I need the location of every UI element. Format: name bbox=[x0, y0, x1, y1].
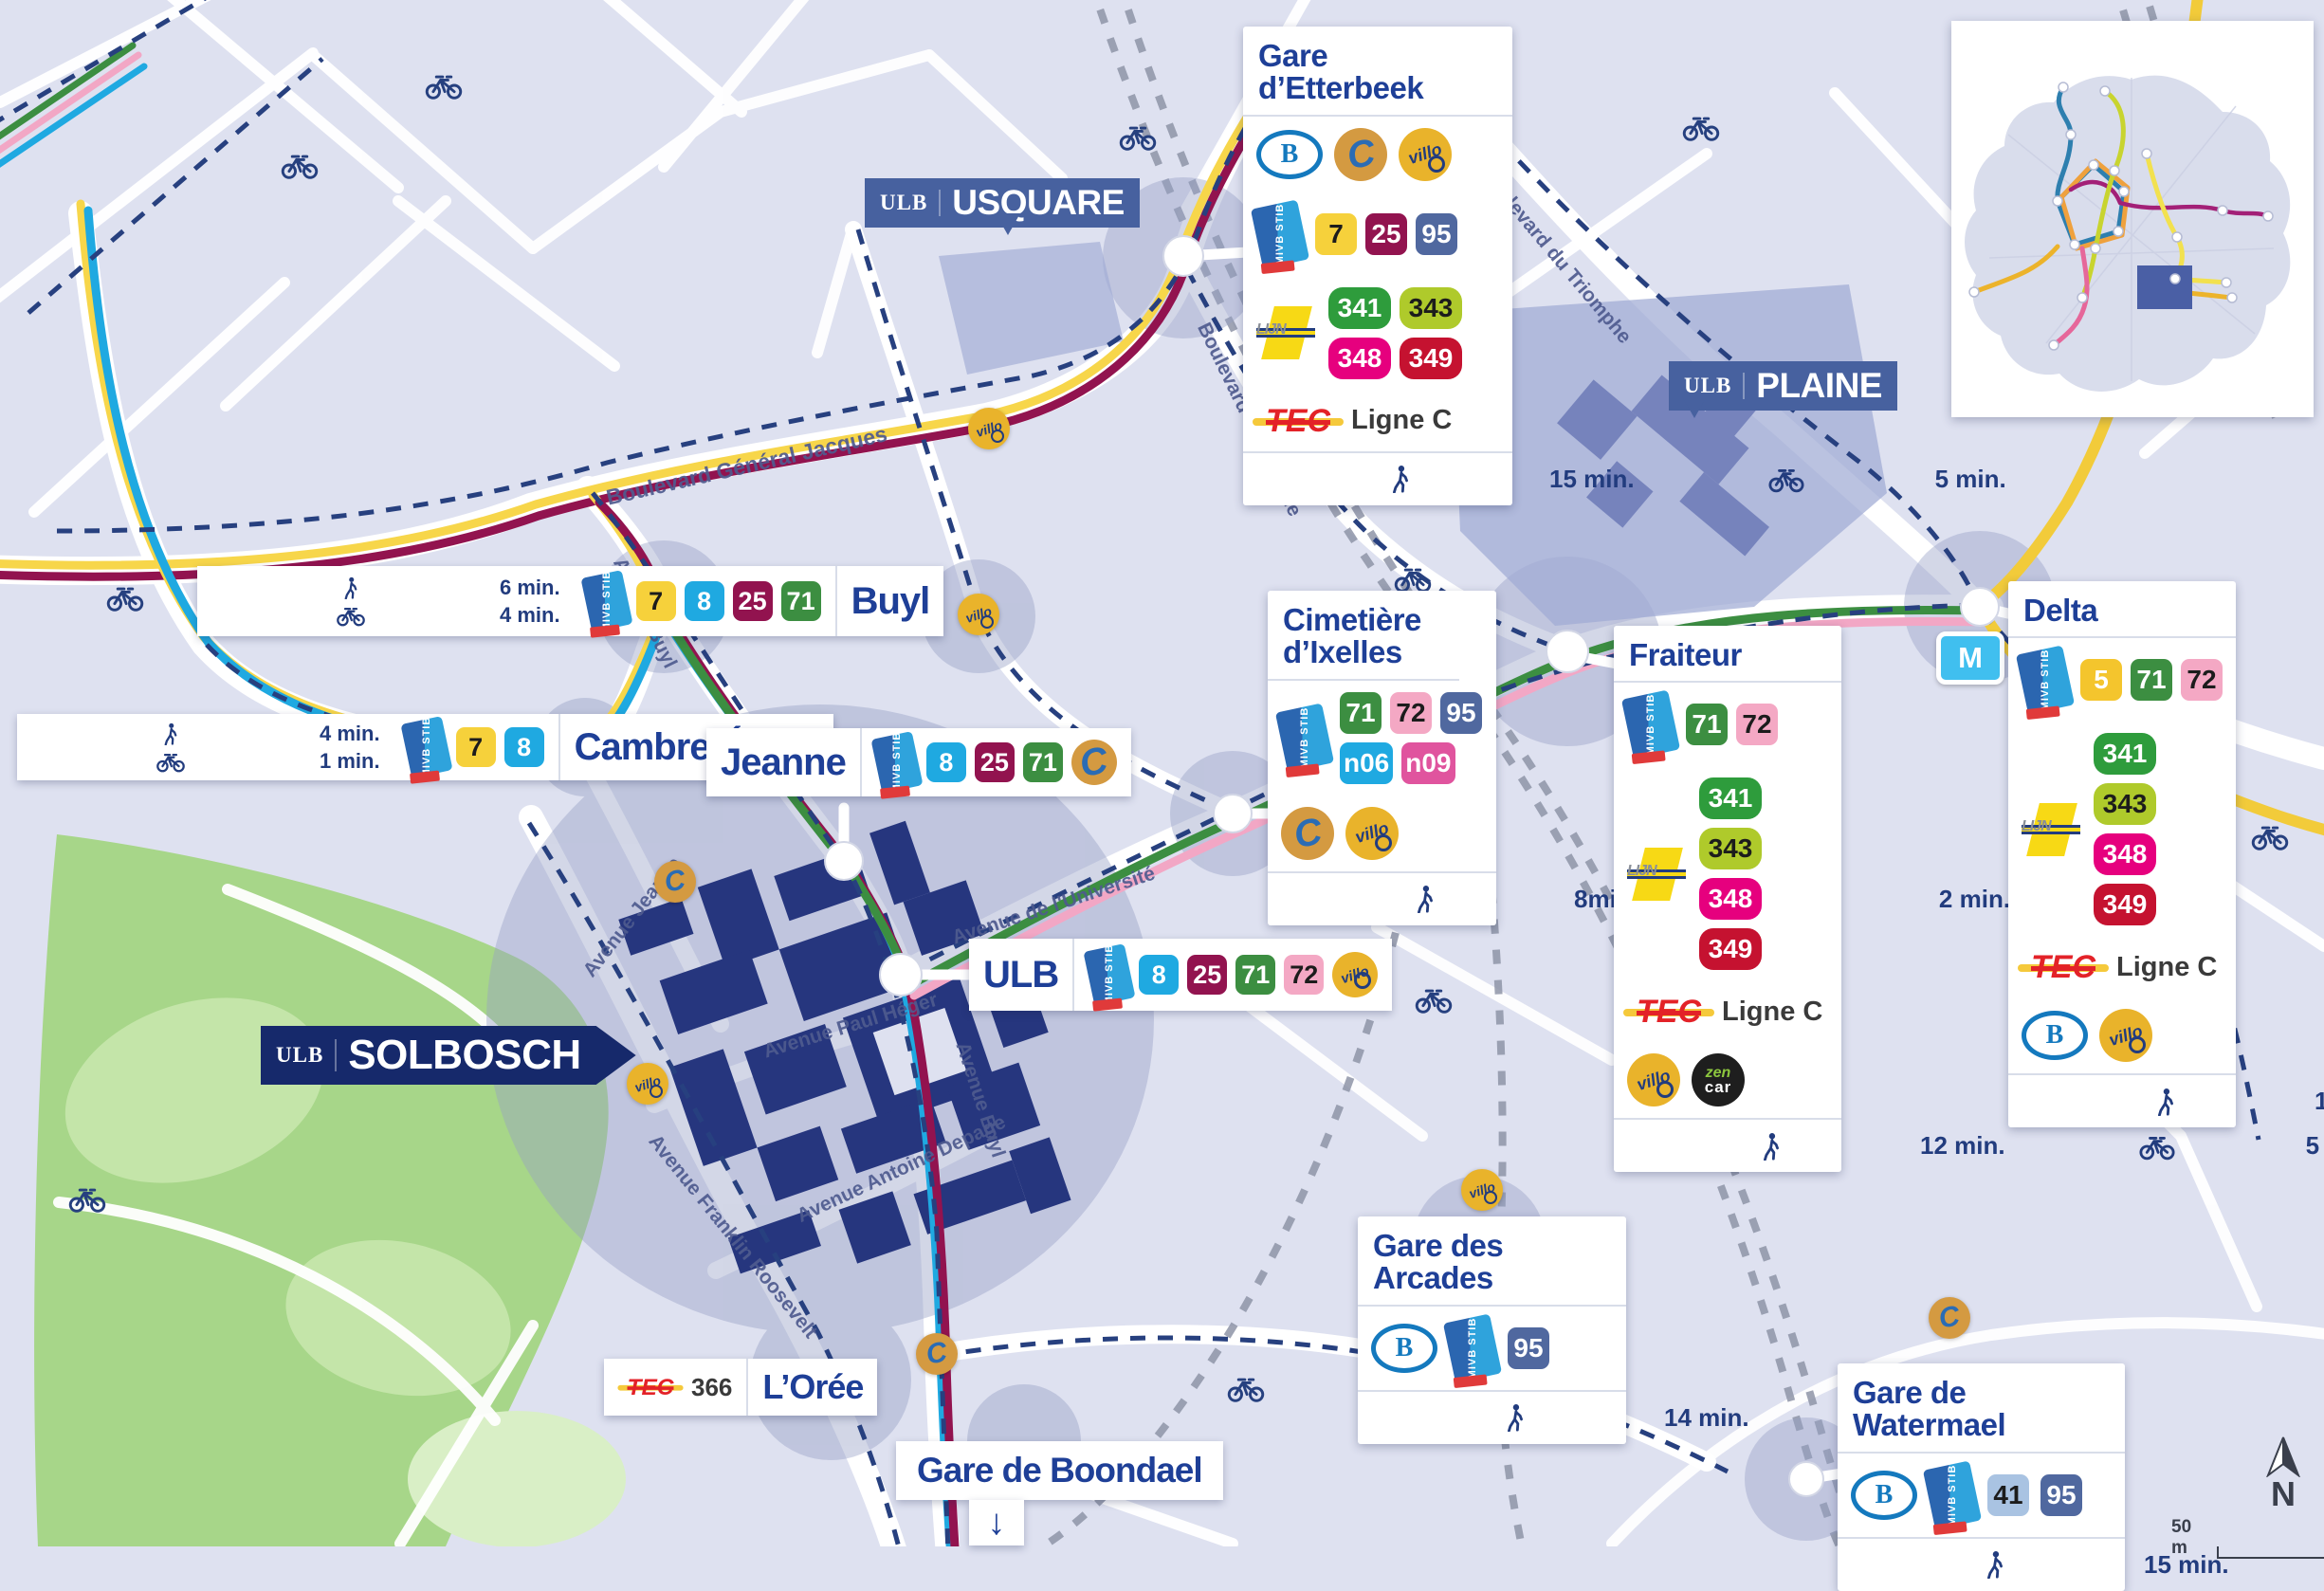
access-times: 6 min. 4 min. bbox=[197, 566, 572, 636]
panel-title: Gare d’Etterbeek bbox=[1243, 27, 1512, 117]
line-badge-95: 95 bbox=[1508, 1327, 1549, 1369]
villo-station-icon: villo bbox=[1461, 1169, 1503, 1211]
delijn-row: LIJN 341 343 348 349 bbox=[1614, 766, 1841, 981]
line-badge-8: 8 bbox=[1139, 955, 1179, 995]
tec-logo: TEC bbox=[2022, 948, 2105, 986]
access-times: 4 min. 1 min. bbox=[17, 714, 392, 780]
line-badge-95: 95 bbox=[1440, 692, 1482, 734]
stib-logo-text: MIVB STIB bbox=[1922, 1472, 1983, 1519]
delijn-row: LIJN 341 343 348 349 bbox=[1243, 276, 1512, 391]
line-badge-343: 343 bbox=[2094, 783, 2156, 825]
stib-logo-text: MIVB STIB bbox=[2015, 656, 2076, 704]
access-times: 14 min. 4 min. bbox=[1358, 1390, 1626, 1444]
line-badge-41: 41 bbox=[1987, 1474, 2029, 1516]
line-badge-72: 72 bbox=[1736, 704, 1778, 745]
line-badge-25: 25 bbox=[975, 742, 1015, 782]
access-times: 15 min. 5 min. bbox=[1243, 451, 1512, 505]
stop-label-boondael: Gare de Boondael bbox=[896, 1441, 1223, 1500]
cambio-logo-text: C bbox=[1344, 133, 1377, 174]
line-badge-349: 349 bbox=[1699, 928, 1762, 970]
transit-map-page: { "icons": { "stib": {"label": "MIVB STI… bbox=[0, 0, 2324, 1546]
operators-row: C villo bbox=[1268, 795, 1496, 871]
villo-icon: villo bbox=[2099, 1009, 2152, 1062]
metro-icon: M bbox=[1936, 631, 2004, 685]
stib-logo-text: MIVB STIB bbox=[579, 580, 634, 622]
stop-name: Buyl bbox=[851, 580, 930, 623]
stib-logo: MIVB STIB bbox=[870, 731, 923, 794]
line-badge-71: 71 bbox=[1235, 955, 1275, 995]
villo-logo-text: villo bbox=[2107, 1021, 2146, 1051]
stib-logo-text: MIVB STIB bbox=[1274, 714, 1335, 761]
stop-name: ULB bbox=[983, 954, 1058, 997]
walk-icon bbox=[1258, 465, 1543, 493]
panel-gare-etterbeek: Gare d’Etterbeek B C villo MIVB STIB 7 2… bbox=[1243, 27, 1512, 505]
line-badge-25: 25 bbox=[1187, 955, 1227, 995]
panel-title: Fraiteur bbox=[1614, 626, 1841, 683]
stib-logo: MIVB STIB bbox=[1923, 1460, 1982, 1529]
city-overview-inset bbox=[1951, 21, 2314, 417]
cambio-logo-text: C bbox=[924, 1338, 950, 1369]
walk-icon bbox=[1629, 1132, 1913, 1161]
sncb-icon: B bbox=[2022, 1011, 2088, 1060]
villo-logo-text: villo bbox=[1353, 818, 1392, 848]
delijn-logo: LIJN bbox=[1627, 848, 1688, 901]
panel-delta: Delta MIVB STIB 5 71 72 LIJN 341 343 348… bbox=[2008, 581, 2236, 1127]
bike-icon bbox=[1644, 465, 1929, 493]
villo-icon: villo bbox=[1399, 128, 1452, 181]
bike-time: 5 min. bbox=[2306, 1131, 2324, 1161]
stib-row: MIVB STIB 5 71 72 bbox=[2008, 638, 2236, 722]
tec-line: Ligne C bbox=[1722, 997, 1822, 1028]
walk-icon bbox=[209, 576, 493, 599]
sncb-icon: B bbox=[1851, 1471, 1917, 1520]
stop-name: L’Orée bbox=[762, 1367, 863, 1407]
walk-icon bbox=[1853, 1550, 2137, 1579]
villo-logo-text: villo bbox=[1406, 139, 1445, 169]
line-badge-n06: n06 bbox=[1340, 742, 1393, 784]
tec-line: Ligne C bbox=[1351, 405, 1452, 436]
access-times: 8min. 2 min. bbox=[1268, 871, 1496, 925]
panel-title: Gare de Watermael bbox=[1838, 1363, 2125, 1454]
walk-time: 14 min. bbox=[1664, 1403, 1749, 1433]
line-badge-71: 71 bbox=[1023, 742, 1063, 782]
bike-time: 5 min. bbox=[1935, 465, 2006, 494]
stop-lines: MIVB STIB 7 8 bbox=[392, 714, 558, 780]
stib-logo: MIVB STIB bbox=[1275, 704, 1334, 773]
tec-row: TEC Ligne C bbox=[1243, 391, 1512, 451]
cambio-station-icon: C bbox=[654, 861, 696, 903]
delijn-logo-text: LIJN bbox=[1627, 863, 1656, 880]
stop-strip-buyl: 6 min. 4 min. MIVB STIB 7 8 25 71 Buyl bbox=[197, 566, 943, 636]
line-badge-341: 341 bbox=[2094, 733, 2156, 775]
operators-row: B MIVB STIB 95 bbox=[1358, 1307, 1626, 1390]
flag-name: PLAINE bbox=[1756, 366, 1882, 406]
scale-bracket bbox=[2217, 1546, 2324, 1559]
operators-row: B villo bbox=[2008, 997, 2236, 1073]
stop-strip-oree: TEC 366 L’Orée bbox=[604, 1359, 877, 1416]
sncb-letter: B bbox=[1281, 139, 1299, 170]
flag-org: ULB bbox=[1684, 374, 1731, 398]
villo-logo-text: villo bbox=[1635, 1066, 1674, 1095]
sncb-letter: B bbox=[1876, 1480, 1894, 1510]
line-badge-5: 5 bbox=[2080, 659, 2122, 701]
delijn-row: LIJN 341 343 348 349 bbox=[2008, 722, 2236, 937]
stop-strip-ulb: ULB MIVB STIB 8 25 71 72 villo bbox=[969, 939, 1392, 1011]
stib-logo-text: MIVB STIB bbox=[1250, 210, 1310, 258]
sncb-letter: B bbox=[1396, 1333, 1414, 1363]
operators-row: villo zencar bbox=[1614, 1042, 1841, 1118]
cambio-logo-text: C bbox=[1937, 1302, 1963, 1333]
stop-name: Gare de Boondael bbox=[917, 1451, 1202, 1490]
line-badge-343: 343 bbox=[1699, 828, 1762, 869]
flag-org: ULB bbox=[880, 191, 927, 215]
stop-name: Jeanne bbox=[721, 741, 846, 784]
line-badge-72: 72 bbox=[1390, 692, 1432, 734]
campus-flag-usquare: ULB USQUARE bbox=[865, 178, 1140, 228]
cambio-station-icon: C bbox=[1929, 1297, 1970, 1339]
north-label: N bbox=[2255, 1477, 2312, 1511]
panel-cimetiere-ixelles: Cimetière d’Ixelles MIVB STIB 71 72 95 n… bbox=[1268, 591, 1496, 925]
walk-time: 19 min. bbox=[2315, 1087, 2324, 1116]
tec-logo-text: TEC bbox=[1637, 996, 1701, 1028]
walk-time: 12 min. bbox=[1920, 1131, 2005, 1161]
walk-time: 4 min. bbox=[320, 722, 380, 746]
line-badge-72: 72 bbox=[2181, 659, 2223, 701]
down-arrow-icon: ↓ bbox=[988, 1503, 1006, 1544]
sncb-icon: B bbox=[1256, 130, 1323, 179]
campus-flag-solbosch: ULB SOLBOSCH bbox=[261, 1026, 636, 1085]
sncb-icon: B bbox=[1371, 1324, 1437, 1373]
stib-logo: MIVB STIB bbox=[1621, 690, 1680, 759]
line-badge-7: 7 bbox=[1315, 213, 1357, 255]
walk-icon bbox=[1373, 1403, 1657, 1432]
stib-logo-text: MIVB STIB bbox=[399, 726, 454, 768]
flag-name: USQUARE bbox=[952, 183, 1125, 223]
tec-logo-text: TEC bbox=[628, 1376, 674, 1399]
panel-gare-de-watermael: Gare de Watermael B MIVB STIB 41 95 15 m… bbox=[1838, 1363, 2125, 1591]
villo-logo-text: villo bbox=[1339, 962, 1371, 986]
panel-title: Cimetière d’Ixelles bbox=[1268, 591, 1459, 681]
bike-time: 1 min. bbox=[320, 749, 380, 774]
line-badge-8: 8 bbox=[685, 581, 724, 621]
tec-logo-text: TEC bbox=[1266, 405, 1330, 437]
stop-lines: MIVB STIB 8 25 71 C bbox=[860, 728, 1131, 796]
villo-logo-text: villo bbox=[632, 1072, 663, 1095]
flag-name: SOLBOSCH bbox=[348, 1032, 580, 1079]
bike-icon bbox=[28, 750, 313, 773]
line-badge-349: 349 bbox=[2094, 884, 2156, 925]
stib-row: MIVB STIB 7 25 95 bbox=[1243, 192, 1512, 276]
line-badge-348: 348 bbox=[1699, 878, 1762, 920]
sncb-letter: B bbox=[2046, 1020, 2064, 1051]
tec-row: TEC Ligne C bbox=[2008, 937, 2236, 997]
stib-logo: MIVB STIB bbox=[1251, 199, 1309, 268]
cambio-logo-text: C bbox=[1290, 812, 1324, 853]
line-badge-71: 71 bbox=[2131, 659, 2172, 701]
tec-logo: TEC bbox=[620, 1374, 680, 1401]
stib-row: MIVB STIB 71 72 bbox=[1614, 683, 1841, 766]
zencar-text-bottom: car bbox=[1705, 1080, 1732, 1095]
inset-artwork bbox=[1951, 21, 2314, 417]
flag-org: ULB bbox=[276, 1043, 323, 1068]
villo-logo-text: villo bbox=[974, 417, 1004, 440]
line-badge-95: 95 bbox=[1416, 213, 1457, 255]
stib-logo: MIVB STIB bbox=[1443, 1313, 1502, 1382]
line-badge-8: 8 bbox=[504, 727, 544, 767]
boondael-direction-arrow: ↓ bbox=[969, 1500, 1024, 1545]
bike-icon bbox=[209, 604, 493, 627]
stib-logo: MIVB STIB bbox=[400, 716, 452, 778]
stib-logo-text: MIVB STIB bbox=[1082, 954, 1137, 996]
cambio-logo-text: C bbox=[1077, 741, 1110, 783]
tec-logo: TEC bbox=[1256, 402, 1340, 440]
villo-logo-text: villo bbox=[963, 603, 994, 626]
walk-time: 6 min. bbox=[500, 576, 560, 600]
stop-lines: MIVB STIB 8 25 71 72 villo bbox=[1072, 939, 1392, 1011]
line-badge-341: 341 bbox=[1699, 777, 1762, 819]
metro-letter: M bbox=[1958, 641, 1983, 675]
access-times: 19 min. 7 min. bbox=[2008, 1073, 2236, 1127]
line-badge-349: 349 bbox=[1400, 338, 1462, 379]
compass: N bbox=[2255, 1434, 2312, 1511]
line-badge-n09: n09 bbox=[1401, 742, 1455, 784]
line-badge-7: 7 bbox=[456, 727, 496, 767]
operators-row: B C villo bbox=[1243, 117, 1512, 192]
line-badge-348: 348 bbox=[1328, 338, 1391, 379]
tec-logo: TEC bbox=[1627, 993, 1711, 1031]
panel-gare-des-arcades: Gare des Arcades B MIVB STIB 95 14 min. … bbox=[1358, 1216, 1626, 1444]
stib-logo: MIVB STIB bbox=[580, 570, 632, 632]
cambio-logo-text: C bbox=[663, 866, 688, 897]
delijn-logo: LIJN bbox=[1256, 306, 1317, 359]
line-badge-366: 366 bbox=[691, 1373, 732, 1402]
stop-lines: TEC 366 bbox=[604, 1359, 746, 1416]
villo-station-icon: villo bbox=[958, 594, 999, 635]
villo-icon: villo bbox=[1345, 807, 1399, 860]
stop-strip-jeanne: Jeanne MIVB STIB 8 25 71 C bbox=[706, 728, 1131, 796]
panel-fraiteur: Fraiteur MIVB STIB 71 72 LIJN 341 343 34… bbox=[1614, 626, 1841, 1172]
scale-label: 50 m bbox=[2171, 1517, 2207, 1559]
walk-time: 15 min. bbox=[1549, 465, 1635, 494]
panel-title: Gare des Arcades bbox=[1358, 1216, 1626, 1307]
stib-logo: MIVB STIB bbox=[2016, 646, 2075, 715]
line-badge-25: 25 bbox=[733, 581, 773, 621]
access-times: 15 min. 5 min. bbox=[1838, 1537, 2125, 1591]
walk-icon bbox=[28, 722, 313, 745]
villo-icon: villo bbox=[1332, 952, 1378, 997]
stib-logo-text: MIVB STIB bbox=[869, 741, 924, 783]
stib-logo: MIVB STIB bbox=[1084, 943, 1136, 1006]
campus-flag-plaine: ULB PLAINE bbox=[1669, 361, 1897, 411]
line-badge-71: 71 bbox=[1340, 692, 1382, 734]
villo-logo-text: villo bbox=[1467, 1179, 1497, 1201]
cambio-icon: C bbox=[1071, 740, 1117, 785]
stib-row: MIVB STIB 71 72 95 n06 n09 bbox=[1268, 681, 1496, 795]
line-badge-8: 8 bbox=[926, 742, 966, 782]
zencar-icon: zencar bbox=[1692, 1053, 1745, 1106]
villo-station-icon: villo bbox=[627, 1063, 668, 1105]
line-badge-341: 341 bbox=[1328, 287, 1391, 329]
stib-logo-text: MIVB STIB bbox=[1620, 701, 1681, 748]
cambio-icon: C bbox=[1281, 807, 1334, 860]
line-badge-95: 95 bbox=[2040, 1474, 2082, 1516]
walk-icon bbox=[1283, 885, 1567, 913]
panel-title: Delta bbox=[2008, 581, 2236, 638]
north-arrow-icon bbox=[2255, 1434, 2312, 1477]
line-badge-7: 7 bbox=[636, 581, 676, 621]
tec-row: TEC Ligne C bbox=[1614, 981, 1841, 1042]
bike-icon bbox=[2015, 1132, 2299, 1161]
access-times: 12 min. 5 min. bbox=[1614, 1118, 1841, 1172]
stib-logo-text: MIVB STIB bbox=[1442, 1325, 1503, 1372]
bike-time: 4 min. bbox=[500, 603, 560, 628]
bike-time: 2 min. bbox=[1939, 885, 2010, 914]
line-badge-72: 72 bbox=[1284, 955, 1324, 995]
tec-line: Ligne C bbox=[2116, 952, 2217, 983]
cambio-icon: C bbox=[1334, 128, 1387, 181]
villo-icon: villo bbox=[1627, 1053, 1680, 1106]
scale-bar: 50 m bbox=[2171, 1517, 2324, 1559]
cambio-station-icon: C bbox=[916, 1333, 958, 1375]
delijn-logo-text: LIJN bbox=[1256, 321, 1286, 338]
line-badge-25: 25 bbox=[1365, 213, 1407, 255]
line-badge-343: 343 bbox=[1400, 287, 1462, 329]
line-badge-348: 348 bbox=[2094, 833, 2156, 875]
delijn-logo-text: LIJN bbox=[2022, 818, 2051, 835]
delijn-logo: LIJN bbox=[2022, 803, 2082, 856]
operators-row: B MIVB STIB 41 95 bbox=[1838, 1454, 2125, 1537]
villo-station-icon: villo bbox=[968, 408, 1010, 449]
tec-logo-text: TEC bbox=[2031, 951, 2095, 983]
stop-lines: MIVB STIB 7 8 25 71 bbox=[572, 566, 835, 636]
line-badge-71: 71 bbox=[781, 581, 821, 621]
walk-icon bbox=[2023, 1088, 2308, 1116]
line-badge-71: 71 bbox=[1686, 704, 1728, 745]
